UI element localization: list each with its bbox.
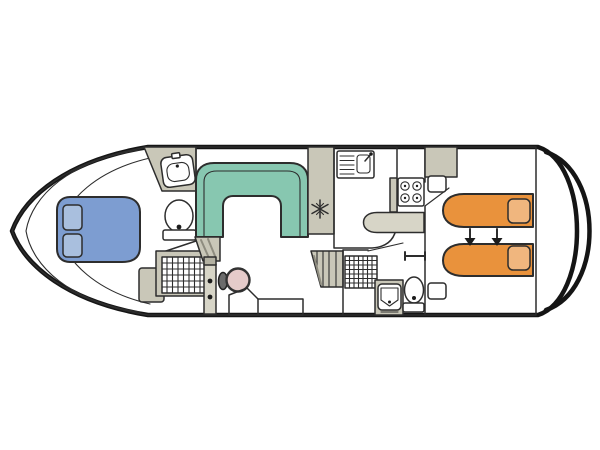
helm (204, 257, 303, 315)
stairs-icon (311, 251, 343, 287)
saloon (195, 163, 308, 261)
galley (308, 147, 424, 248)
bedside-shelf (428, 283, 446, 299)
front-cabin (57, 197, 164, 302)
pillow (508, 246, 530, 270)
door-leaf (405, 252, 425, 260)
stove-icon (398, 178, 424, 206)
shower-grid-icon (162, 257, 206, 293)
door-hinge (208, 279, 213, 284)
wardrobe (425, 147, 457, 177)
shower-grid-icon (345, 256, 377, 288)
boat-floorplan (0, 0, 600, 450)
cabin-door (204, 264, 216, 314)
pillow (63, 234, 82, 257)
counter-strip (390, 178, 397, 212)
rear-cabin (425, 147, 533, 315)
rear-bathroom (343, 243, 425, 315)
pillow (508, 199, 530, 223)
boat-floorplan-canvas (0, 0, 600, 450)
fridge-cabinet (308, 147, 334, 234)
kitchen-sink-icon (337, 151, 374, 178)
door-cap (204, 257, 216, 265)
toilet-icon (403, 277, 424, 312)
pillow (63, 205, 82, 230)
toilet-icon (163, 200, 196, 240)
door-hinge (208, 295, 213, 300)
u-shaped-dinette (196, 163, 308, 237)
washbasin-icon (378, 284, 401, 312)
bedside-shelf (428, 176, 446, 192)
worktop-peninsula (364, 213, 425, 233)
